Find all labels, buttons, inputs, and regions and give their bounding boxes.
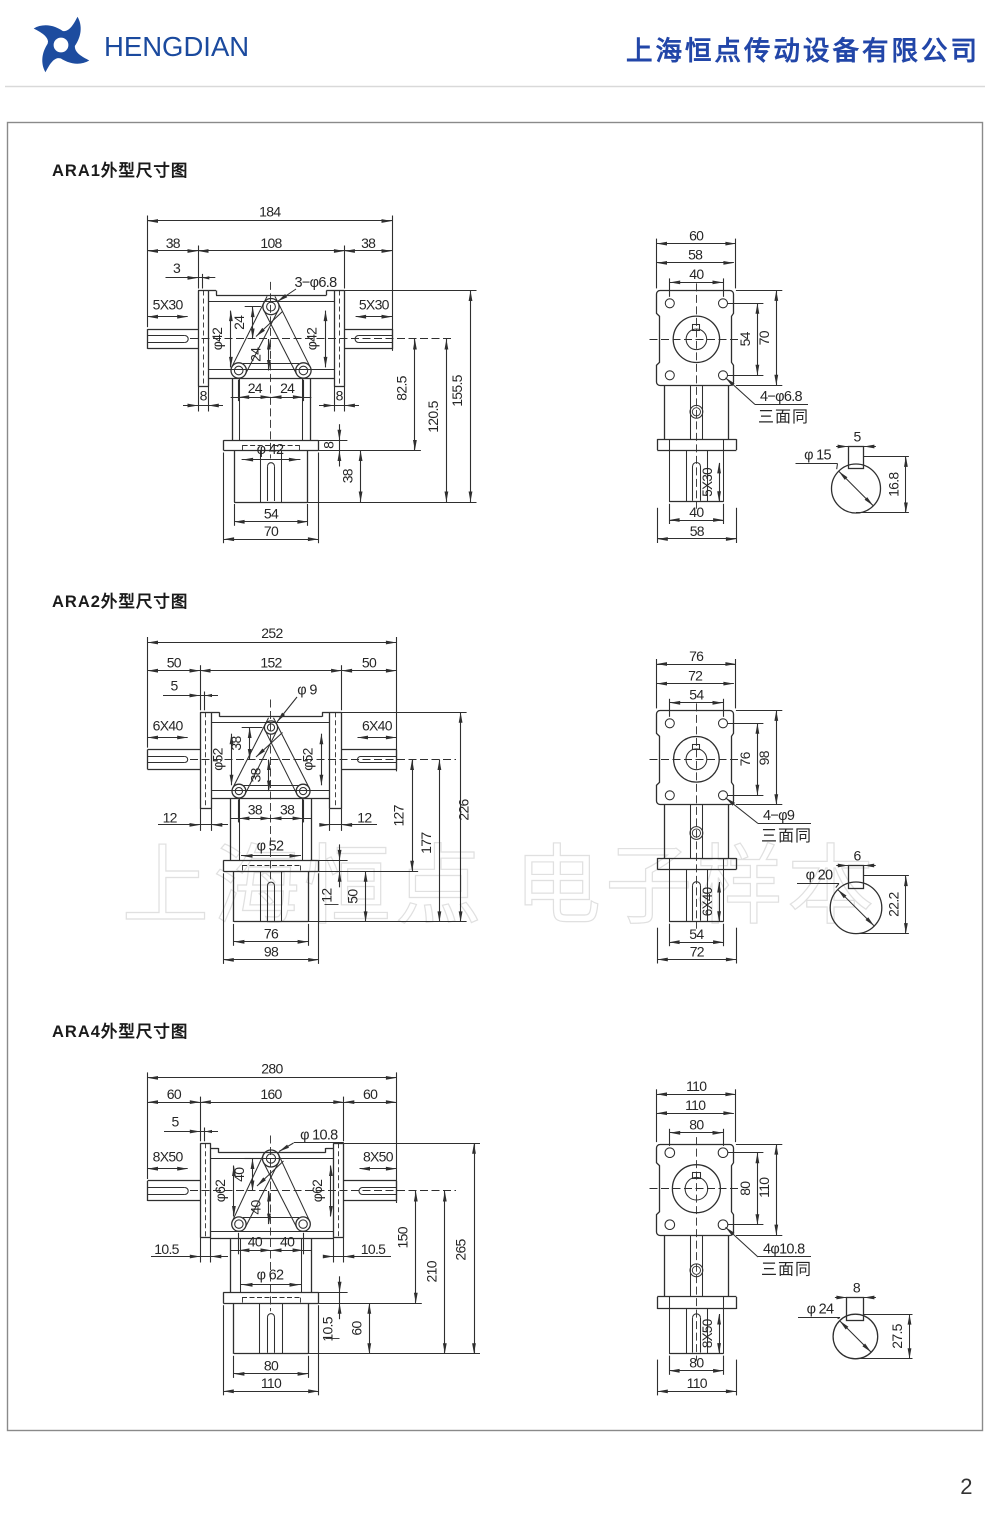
svg-text:8: 8 xyxy=(853,1280,861,1296)
svg-text:5: 5 xyxy=(171,1114,179,1130)
svg-text:82.5: 82.5 xyxy=(393,375,409,400)
svg-text:58: 58 xyxy=(690,523,705,539)
svg-text:40: 40 xyxy=(248,1200,264,1215)
svg-text:252: 252 xyxy=(261,625,283,641)
svg-text:4−φ6.8: 4−φ6.8 xyxy=(760,389,803,405)
svg-text:24: 24 xyxy=(248,380,263,396)
svg-text:54: 54 xyxy=(689,926,704,942)
svg-text:12: 12 xyxy=(357,809,372,825)
svg-text:ARA2外型尺寸图: ARA2外型尺寸图 xyxy=(52,591,188,611)
svg-text:60: 60 xyxy=(363,1086,378,1102)
svg-text:280: 280 xyxy=(261,1060,283,1076)
svg-text:38: 38 xyxy=(340,468,356,483)
svg-text:38: 38 xyxy=(280,801,295,817)
svg-text:80: 80 xyxy=(689,1117,704,1133)
svg-text:10.5: 10.5 xyxy=(154,1241,179,1257)
svg-text:152: 152 xyxy=(260,655,282,671)
svg-text:60: 60 xyxy=(689,227,704,243)
svg-text:φ 9: φ 9 xyxy=(297,683,317,699)
svg-text:40: 40 xyxy=(689,266,704,282)
svg-text:155.5: 155.5 xyxy=(449,374,465,406)
svg-text:2: 2 xyxy=(960,1474,972,1499)
svg-text:4φ10.8: 4φ10.8 xyxy=(763,1242,805,1258)
svg-text:10.5: 10.5 xyxy=(361,1241,386,1257)
svg-text:127: 127 xyxy=(391,804,407,826)
svg-text:φ 10.8: φ 10.8 xyxy=(300,1128,338,1144)
svg-text:110: 110 xyxy=(687,1375,708,1391)
svg-text:上海恒点 电子样本: 上海恒点 电子样本 xyxy=(122,838,878,935)
svg-text:60: 60 xyxy=(348,1321,364,1336)
svg-text:80: 80 xyxy=(737,1181,753,1196)
svg-text:三面同: 三面同 xyxy=(758,409,809,426)
svg-text:φ 24: φ 24 xyxy=(807,1302,834,1318)
svg-text:16.8: 16.8 xyxy=(885,472,901,497)
svg-text:8: 8 xyxy=(336,388,344,404)
svg-text:三面同: 三面同 xyxy=(761,1262,812,1279)
svg-text:φ 52: φ 52 xyxy=(257,838,284,854)
svg-text:10.5: 10.5 xyxy=(320,1316,336,1341)
svg-text:上海恒点传动设备有限公司: 上海恒点传动设备有限公司 xyxy=(626,36,980,66)
svg-text:98: 98 xyxy=(264,944,279,960)
svg-text:76: 76 xyxy=(737,751,753,766)
svg-text:ARA1外型尺寸图: ARA1外型尺寸图 xyxy=(52,160,188,180)
svg-text:5X30: 5X30 xyxy=(153,297,184,313)
svg-text:40: 40 xyxy=(689,504,704,520)
svg-text:98: 98 xyxy=(756,750,772,765)
svg-text:8X50: 8X50 xyxy=(363,1149,394,1165)
svg-text:110: 110 xyxy=(686,1078,707,1094)
svg-text:110: 110 xyxy=(261,1375,282,1391)
svg-text:φ52: φ52 xyxy=(210,747,226,770)
svg-text:70: 70 xyxy=(756,330,772,345)
svg-text:184: 184 xyxy=(259,204,281,220)
svg-text:76: 76 xyxy=(264,926,279,942)
svg-text:38: 38 xyxy=(166,235,181,251)
svg-text:三面同: 三面同 xyxy=(761,828,812,845)
svg-text:72: 72 xyxy=(690,943,705,959)
svg-text:226: 226 xyxy=(456,798,472,820)
svg-text:40: 40 xyxy=(280,1233,295,1249)
svg-text:40: 40 xyxy=(231,1167,247,1182)
svg-text:φ42: φ42 xyxy=(209,327,225,350)
svg-text:150: 150 xyxy=(394,1226,410,1248)
svg-text:110: 110 xyxy=(756,1177,772,1198)
svg-text:76: 76 xyxy=(689,648,704,664)
svg-text:80: 80 xyxy=(689,1355,704,1371)
svg-text:24: 24 xyxy=(247,347,263,362)
svg-text:108: 108 xyxy=(260,235,282,251)
svg-text:8X50: 8X50 xyxy=(700,1319,715,1348)
svg-text:210: 210 xyxy=(423,1260,439,1282)
svg-text:φ 15: φ 15 xyxy=(804,448,831,464)
svg-text:12: 12 xyxy=(163,809,178,825)
svg-text:27.5: 27.5 xyxy=(889,1323,905,1348)
svg-text:12: 12 xyxy=(319,888,335,903)
svg-text:50: 50 xyxy=(345,889,361,904)
svg-text:22.2: 22.2 xyxy=(885,891,901,916)
svg-text:6X40: 6X40 xyxy=(700,887,715,916)
svg-text:HENGDIAN: HENGDIAN xyxy=(104,31,249,62)
svg-text:φ62: φ62 xyxy=(212,1179,228,1202)
svg-text:4−φ9: 4−φ9 xyxy=(763,808,795,824)
svg-text:φ42: φ42 xyxy=(304,327,320,350)
svg-text:3−φ6.8: 3−φ6.8 xyxy=(295,275,338,291)
svg-text:38: 38 xyxy=(247,767,263,782)
svg-text:54: 54 xyxy=(737,331,753,346)
svg-text:38: 38 xyxy=(228,736,244,751)
svg-text:8: 8 xyxy=(200,388,208,404)
svg-text:24: 24 xyxy=(280,380,295,396)
svg-text:40: 40 xyxy=(248,1233,263,1249)
svg-text:8X50: 8X50 xyxy=(153,1149,184,1165)
svg-text:38: 38 xyxy=(361,235,376,251)
svg-text:6: 6 xyxy=(853,848,861,864)
svg-text:5X30: 5X30 xyxy=(359,297,390,313)
svg-text:φ 20: φ 20 xyxy=(806,868,833,884)
svg-text:38: 38 xyxy=(248,801,263,817)
svg-text:54: 54 xyxy=(264,506,279,522)
svg-text:265: 265 xyxy=(453,1238,469,1260)
svg-text:72: 72 xyxy=(688,667,703,683)
svg-text:58: 58 xyxy=(688,247,703,263)
svg-text:φ62: φ62 xyxy=(309,1179,325,1202)
svg-text:5: 5 xyxy=(170,678,178,694)
svg-text:70: 70 xyxy=(264,523,279,539)
svg-text:ARA4外型尺寸图: ARA4外型尺寸图 xyxy=(52,1021,188,1041)
svg-text:60: 60 xyxy=(167,1086,182,1102)
svg-text:6X40: 6X40 xyxy=(362,718,393,734)
svg-text:120.5: 120.5 xyxy=(425,400,441,432)
svg-text:8: 8 xyxy=(321,441,337,449)
svg-text:6X40: 6X40 xyxy=(153,718,184,734)
svg-text:177: 177 xyxy=(418,832,434,854)
svg-text:160: 160 xyxy=(260,1086,282,1102)
svg-text:3: 3 xyxy=(173,260,181,276)
svg-text:5X30: 5X30 xyxy=(700,468,715,497)
svg-text:80: 80 xyxy=(264,1358,279,1374)
svg-text:24: 24 xyxy=(231,315,247,330)
svg-text:50: 50 xyxy=(362,655,377,671)
svg-text:φ52: φ52 xyxy=(299,747,315,770)
svg-text:50: 50 xyxy=(167,655,182,671)
svg-text:54: 54 xyxy=(689,687,704,703)
svg-text:φ 42: φ 42 xyxy=(257,442,284,458)
svg-text:110: 110 xyxy=(685,1097,706,1113)
svg-text:5: 5 xyxy=(853,429,861,445)
svg-text:φ 62: φ 62 xyxy=(257,1267,284,1283)
